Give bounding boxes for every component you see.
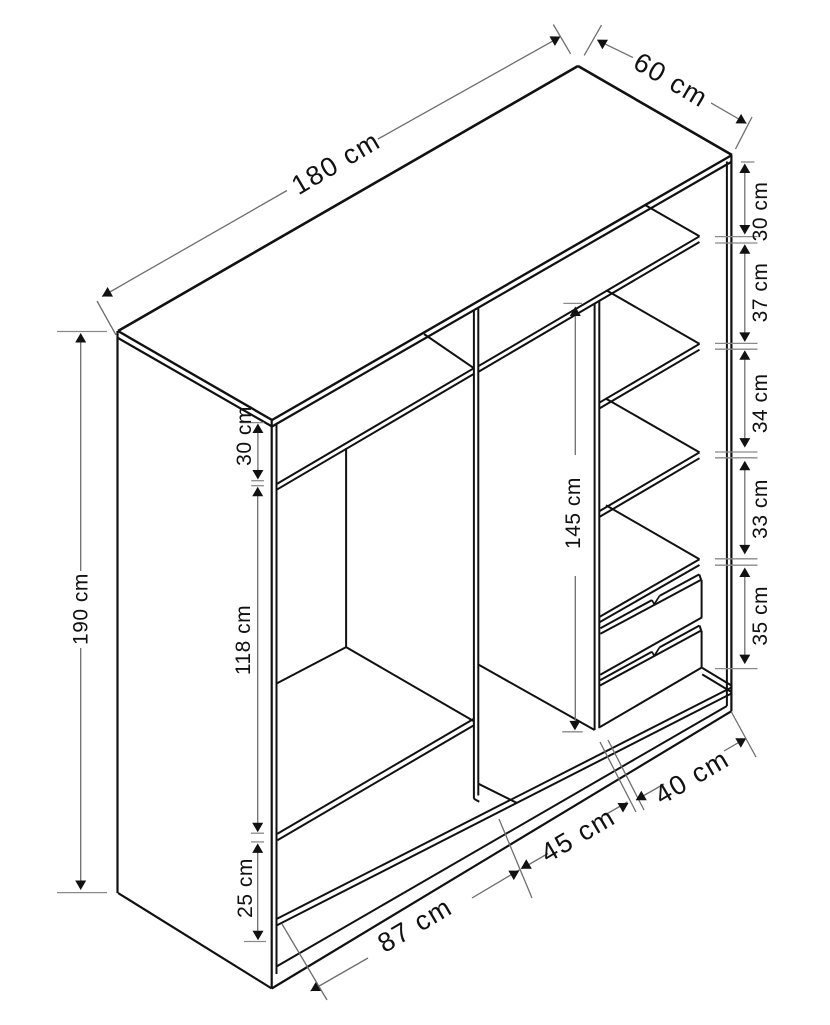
- svg-text:35 cm: 35 cm: [749, 586, 772, 646]
- svg-text:30 cm: 30 cm: [233, 406, 256, 466]
- svg-text:25 cm: 25 cm: [234, 858, 257, 918]
- svg-text:118 cm: 118 cm: [232, 605, 255, 675]
- svg-text:145 cm: 145 cm: [562, 477, 585, 549]
- svg-text:190 cm: 190 cm: [70, 573, 93, 645]
- svg-text:33 cm: 33 cm: [749, 479, 772, 539]
- svg-text:37 cm: 37 cm: [749, 263, 772, 323]
- svg-text:34 cm: 34 cm: [749, 373, 772, 433]
- svg-text:30 cm: 30 cm: [749, 182, 772, 242]
